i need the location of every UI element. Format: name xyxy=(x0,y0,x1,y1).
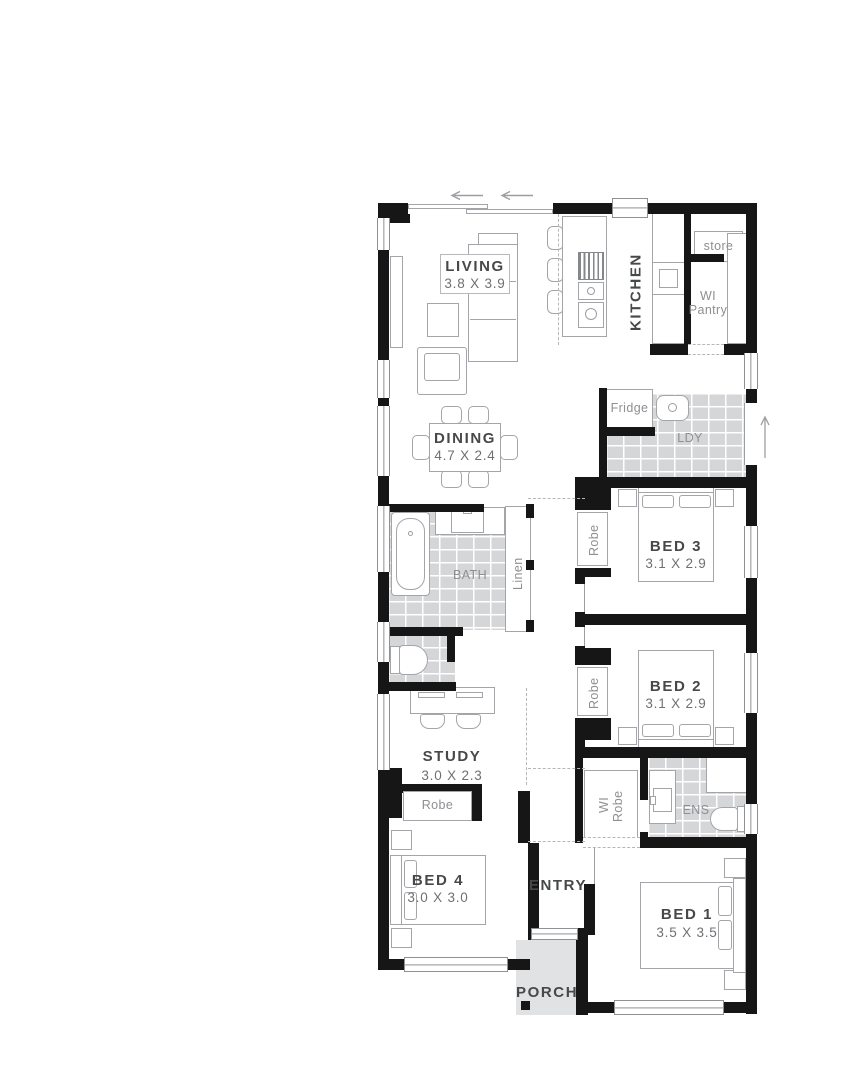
hall-opening-dashed xyxy=(528,498,585,500)
bed4-label: BED 4 xyxy=(398,872,478,889)
window xyxy=(404,957,508,972)
laundry-door-opening xyxy=(744,403,758,465)
bed4-side-table xyxy=(391,830,412,850)
wall-segment xyxy=(378,768,402,818)
wall-segment xyxy=(691,254,724,262)
store-label: store xyxy=(694,239,743,253)
bed2-side-table xyxy=(715,727,734,745)
wall-segment xyxy=(447,634,455,662)
entry-opening-dashed xyxy=(528,841,585,843)
window xyxy=(377,218,390,250)
bed3-side-table xyxy=(715,489,734,507)
window xyxy=(744,653,758,713)
wall-segment xyxy=(518,791,530,843)
sliding-door-panel xyxy=(466,209,553,214)
study-chair xyxy=(420,714,445,729)
living-label: LIVING xyxy=(425,258,525,275)
bed1-side-table xyxy=(724,858,746,878)
slide-direction-arrow xyxy=(497,190,535,201)
window xyxy=(612,198,648,218)
wall-segment xyxy=(640,837,757,848)
kitchen-drainer xyxy=(578,252,604,280)
dining-chair xyxy=(441,406,462,424)
window xyxy=(377,622,390,662)
wall-segment xyxy=(575,718,611,740)
wall-segment xyxy=(599,427,655,436)
entry-door xyxy=(531,928,578,940)
dining-label: DINING xyxy=(429,430,501,447)
wall-segment xyxy=(388,504,484,512)
bed3-pillow xyxy=(679,495,711,508)
bed2-door-opening xyxy=(575,627,585,646)
wall-segment xyxy=(576,928,588,1015)
bed3-pillow xyxy=(642,495,674,508)
bed2-label: BED 2 xyxy=(636,678,716,695)
door-direction-arrow xyxy=(758,410,772,460)
wall-segment xyxy=(526,560,534,570)
bed3-label: BED 3 xyxy=(636,538,716,555)
fridge-label: Fridge xyxy=(606,401,653,415)
study-monitor xyxy=(418,692,445,698)
window xyxy=(377,406,390,476)
wall-segment xyxy=(575,747,757,758)
bath-basin xyxy=(451,511,484,533)
wall-segment xyxy=(575,648,611,665)
wi-pantry-label-line2: Pantry xyxy=(682,303,734,317)
dining-chair xyxy=(468,406,489,424)
ens-tap xyxy=(650,796,656,805)
armchair-cushion xyxy=(424,353,460,381)
bath-label: BATH xyxy=(438,568,502,582)
bed1-headboard xyxy=(733,878,746,973)
pantry-opening xyxy=(688,344,724,355)
window xyxy=(744,804,758,834)
wall-segment xyxy=(684,213,691,347)
wall-segment xyxy=(575,568,611,577)
wall-segment xyxy=(526,620,534,632)
bed1-side-table xyxy=(724,970,746,990)
study-dims: 3.0 X 2.3 xyxy=(402,768,502,783)
window xyxy=(614,1000,724,1015)
dining-chair xyxy=(468,470,489,488)
cooktop-burner xyxy=(585,308,597,320)
bed3-robe-label: Robe xyxy=(586,515,602,565)
bathtub-drain xyxy=(408,531,413,536)
bed2-side-table xyxy=(618,727,637,745)
wall-segment xyxy=(746,203,757,1014)
wall-segment xyxy=(526,504,534,518)
living-dims: 3.8 X 3.9 xyxy=(425,276,525,291)
bed1-dims: 3.5 X 3.5 xyxy=(647,925,727,940)
dining-chair xyxy=(441,470,462,488)
bed2-robe-label: Robe xyxy=(586,668,602,718)
study-chair xyxy=(456,714,481,729)
entry-label: ENTRY xyxy=(526,877,590,894)
wall-oven-door xyxy=(659,269,678,288)
study-monitor xyxy=(456,692,483,698)
bed3-dims: 3.1 X 2.9 xyxy=(636,556,716,571)
bed3-door-opening xyxy=(575,584,585,612)
wi-robe-label-line2: Robe xyxy=(611,777,625,835)
bed2-pillow xyxy=(679,724,711,737)
bed1-label: BED 1 xyxy=(647,906,727,923)
tv-unit xyxy=(390,256,403,348)
ens-door-opening xyxy=(640,800,648,832)
kitchen-label: KITCHEN xyxy=(620,233,652,351)
porch-label: PORCH xyxy=(516,984,577,1001)
kitchen-boundary-dashed xyxy=(558,214,560,345)
bathtub-inner xyxy=(396,518,425,590)
bed2-pillow xyxy=(642,724,674,737)
ens-label: ENS xyxy=(670,803,722,817)
window xyxy=(377,694,390,770)
window xyxy=(744,353,758,389)
laundry-tub-drain xyxy=(668,403,677,412)
hall-opening-dashed xyxy=(528,768,585,770)
study-opening-dashed xyxy=(526,688,528,785)
wall-segment xyxy=(378,203,389,968)
window xyxy=(744,526,758,578)
sink-drain xyxy=(587,287,595,295)
coffee-table xyxy=(427,303,459,337)
dining-chair xyxy=(412,435,430,460)
window xyxy=(377,360,390,398)
bed4-dims: 3.0 X 3.0 xyxy=(398,890,478,905)
wall-segment xyxy=(378,682,456,691)
study-label: STUDY xyxy=(402,748,502,765)
slide-direction-arrow xyxy=(447,190,485,201)
linen-label: Linen xyxy=(509,546,527,601)
wall-segment xyxy=(575,480,611,510)
wc-toilet-bowl xyxy=(399,645,428,675)
ens-shower xyxy=(706,756,747,793)
wi-pantry-label-line1: WI xyxy=(682,289,734,303)
dining-chair xyxy=(500,435,518,460)
laundry-label: LDY xyxy=(664,431,716,445)
dining-dims: 4.7 X 2.4 xyxy=(429,448,501,463)
sofa-cushion-line xyxy=(470,319,516,320)
bed4-side-table xyxy=(391,928,412,948)
wir-opening xyxy=(583,837,640,848)
floor-plan: LIVING 3.8 X 3.9 KITCHEN store WI Pantry… xyxy=(0,0,855,1070)
wi-robe-label-line1: WI xyxy=(597,780,611,830)
porch-post xyxy=(521,1001,530,1010)
window xyxy=(377,506,390,572)
bed2-dims: 3.1 X 2.9 xyxy=(636,696,716,711)
wall-segment xyxy=(575,758,583,843)
bed4-robe-label: Robe xyxy=(403,798,472,812)
wall-segment xyxy=(575,614,757,625)
sliding-door-panel xyxy=(408,204,488,209)
bed3-side-table xyxy=(618,489,637,507)
